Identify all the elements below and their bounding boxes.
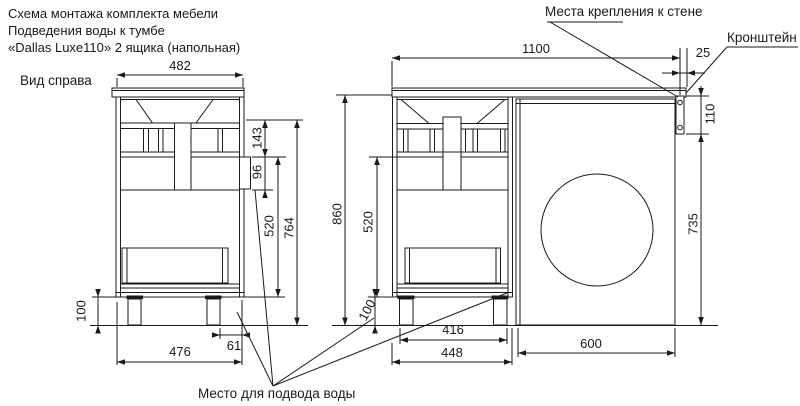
dim-476: 476 [169,344,191,359]
dim-96: 96 [250,165,265,179]
dim-764: 764 [282,217,297,239]
dim-482: 482 [169,58,191,73]
title-line-2: Подведения воды к тумбе [8,22,240,39]
bracket-label: Кронштейн [727,30,797,46]
dim-520-front: 520 [361,211,376,233]
installation-diagram-page: 482 1100 25 110 735 143 96 520 764 860 5… [0,0,800,406]
title-line-3: «Dallas Luxe110» 2 ящика (напольная) [8,39,240,56]
wall-bracket [676,96,684,134]
dim-520-side: 520 [262,215,277,237]
side-view-cabinet-drawing [112,88,251,325]
front-view-cabinet-drawing [392,88,686,325]
dim-100-side: 100 [74,300,89,322]
dim-448: 448 [441,345,463,360]
technical-drawing: 482 1100 25 110 735 143 96 520 764 860 5… [0,0,800,406]
dim-110: 110 [703,104,718,125]
front-drain-pipe [443,117,461,190]
title-line-1: Схема монтажа комплекта мебели [8,5,240,22]
dim-143: 143 [250,127,265,149]
side-leg [207,299,220,325]
wall-mount-points-label: Места крепления к стене [545,4,703,20]
dim-600: 600 [580,336,602,351]
dim-1100: 1100 [522,41,550,56]
front-leg [400,299,414,325]
side-leg [128,299,141,325]
dim-25: 25 [696,45,710,60]
dim-61: 61 [227,338,241,353]
view-right-label: Вид справа [20,73,92,89]
drawing-title: Схема монтажа комплекта мебели Подведени… [8,5,240,56]
dim-860: 860 [330,203,345,225]
bracket-screw-hole [678,125,683,130]
side-drain-pipe [175,123,192,190]
dim-416: 416 [442,322,464,337]
front-leg [494,299,508,325]
washing-machine-drawing [516,96,684,325]
bracket-screw-hole [678,100,683,105]
washing-machine-door [541,174,653,286]
water-supply-label: Место для подвода воды [198,386,355,402]
dimension-texts: 482 1100 25 110 735 143 96 520 764 860 5… [74,41,718,360]
dimension-lines [95,55,705,365]
dim-735: 735 [686,213,701,235]
extension-lines [90,48,718,365]
